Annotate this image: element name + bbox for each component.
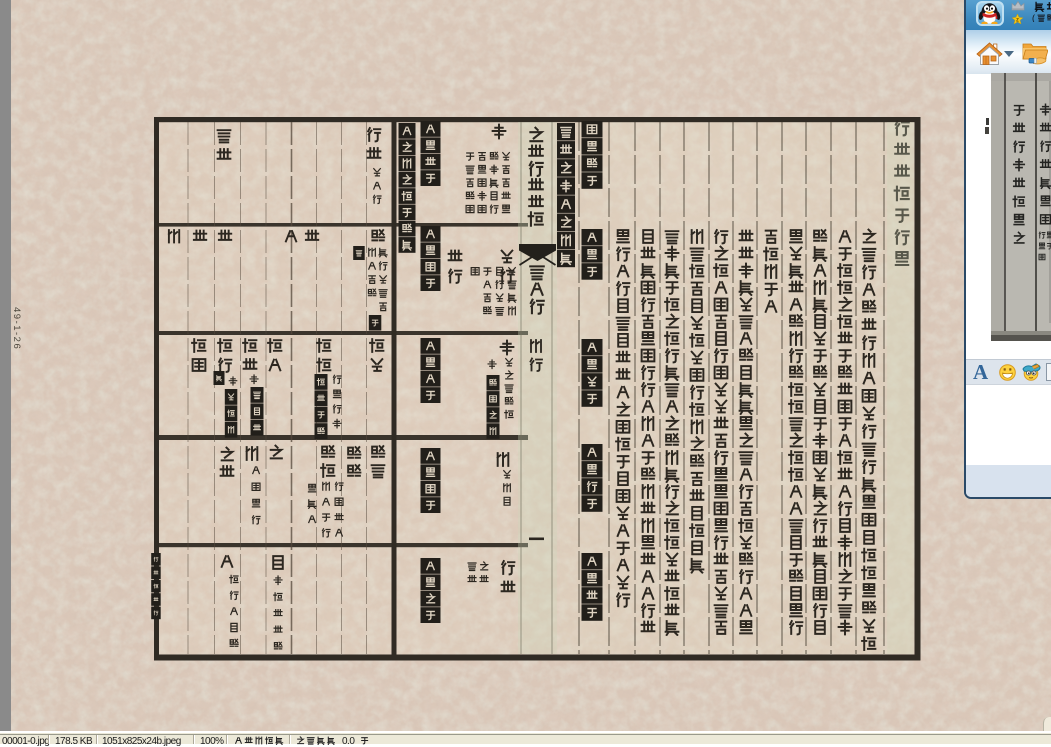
svg-text:z: z [1016, 18, 1019, 24]
svg-text:(: ( [1032, 13, 1035, 22]
